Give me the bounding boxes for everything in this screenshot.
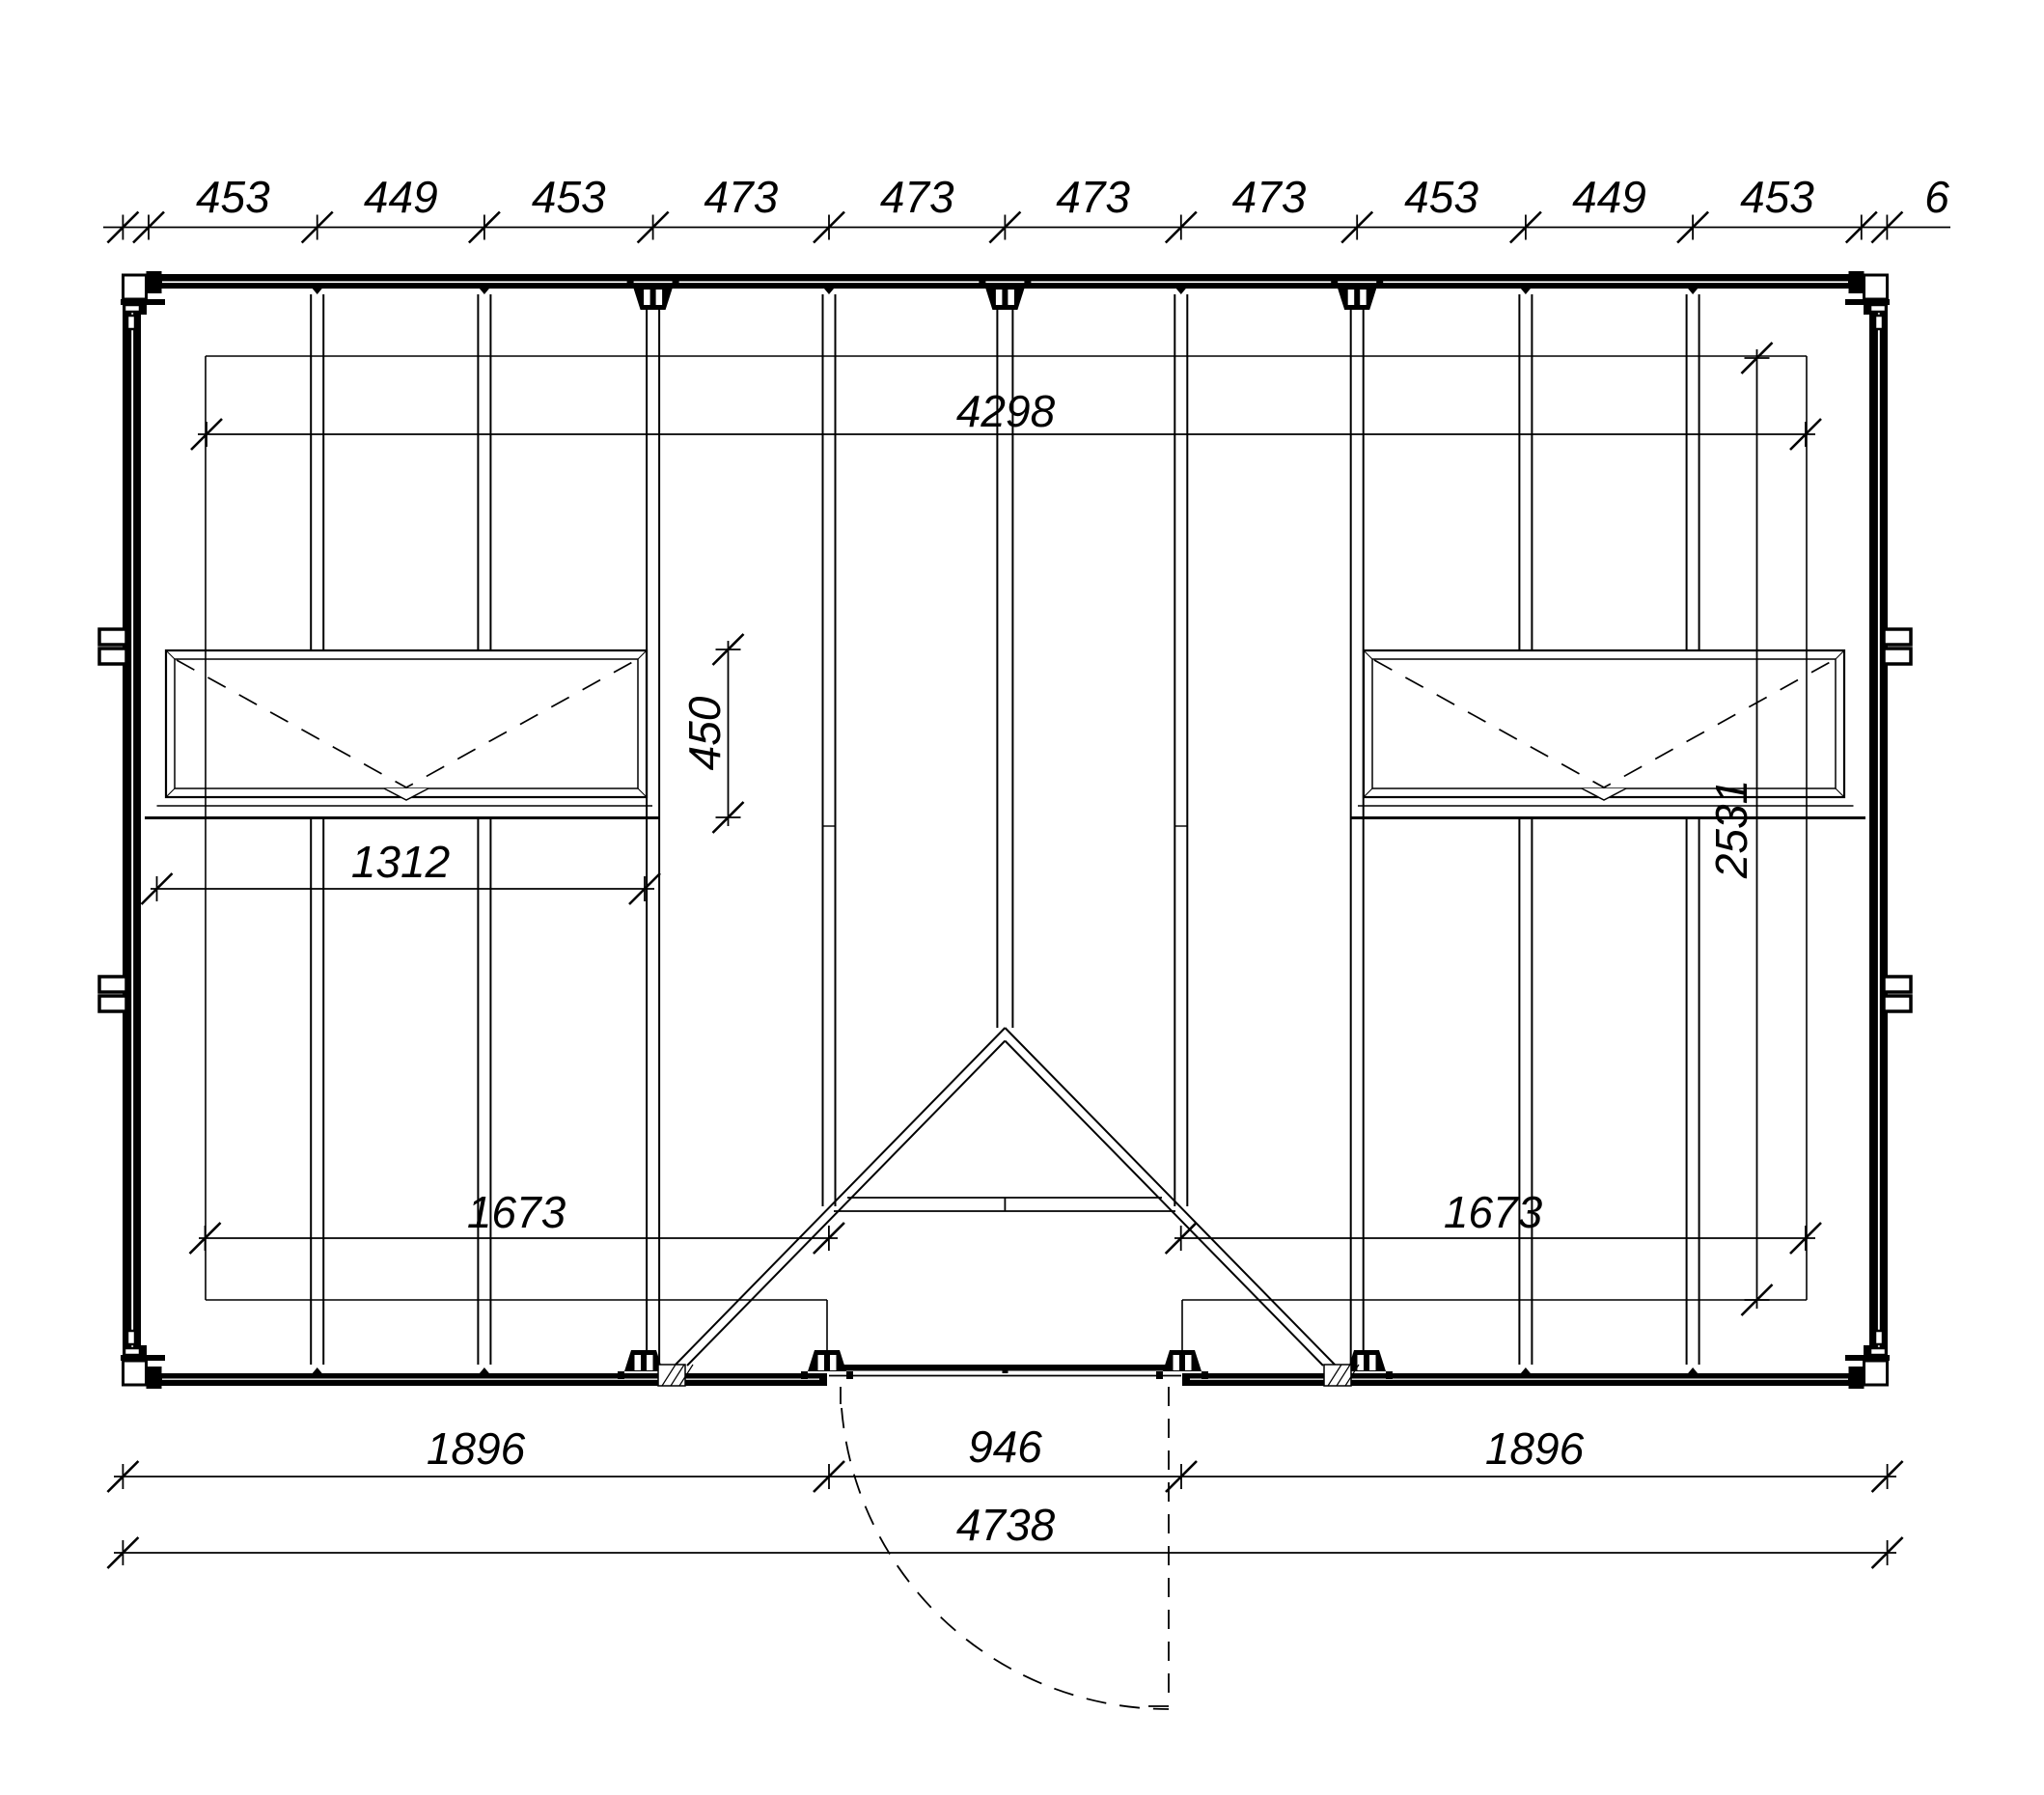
svg-text:946: 946 (968, 1422, 1042, 1472)
svg-text:1673: 1673 (467, 1187, 566, 1237)
svg-text:473: 473 (1232, 172, 1307, 222)
svg-text:473: 473 (880, 172, 954, 222)
svg-text:453: 453 (532, 172, 606, 222)
svg-text:473: 473 (704, 172, 778, 222)
svg-text:453: 453 (196, 172, 270, 222)
svg-text:1896: 1896 (427, 1423, 526, 1474)
svg-text:450: 450 (679, 696, 730, 770)
svg-text:473: 473 (1056, 172, 1130, 222)
svg-text:1673: 1673 (1444, 1187, 1543, 1237)
svg-text:449: 449 (364, 172, 438, 222)
svg-text:4738: 4738 (956, 1500, 1056, 1550)
svg-text:4298: 4298 (956, 386, 1056, 436)
svg-text:449: 449 (1572, 172, 1646, 222)
svg-text:453: 453 (1740, 172, 1814, 222)
svg-text:6: 6 (1924, 172, 1949, 222)
svg-text:1896: 1896 (1485, 1423, 1585, 1474)
svg-text:1312: 1312 (351, 837, 450, 887)
svg-text:2531: 2531 (1706, 780, 1756, 879)
svg-text:453: 453 (1404, 172, 1478, 222)
